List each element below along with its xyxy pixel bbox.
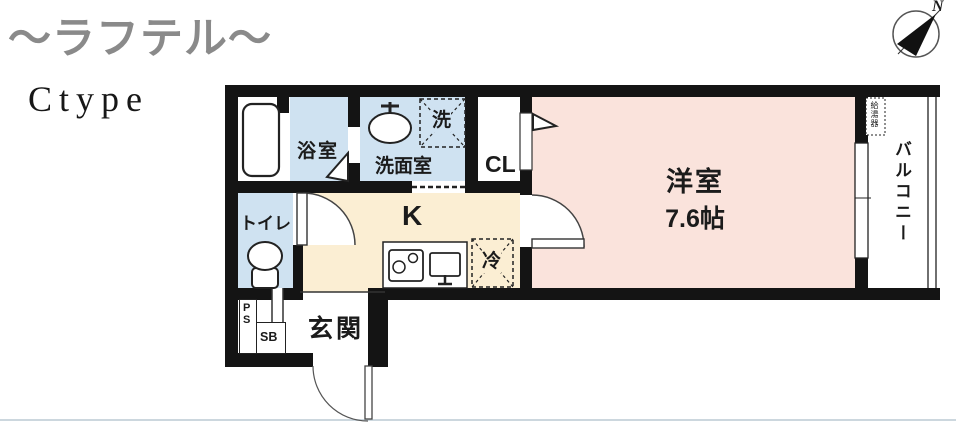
unit-type-label: Ctype <box>28 78 149 120</box>
plan-title: 〜ラフテル〜 <box>8 4 272 66</box>
window-balcony <box>855 143 868 258</box>
room-western-size: 7.6帖 <box>630 199 760 235</box>
wall-outer-left <box>225 85 238 367</box>
doorway-western-room <box>520 195 532 247</box>
wall-under-toilet <box>225 288 298 300</box>
room-western-label: 洋室 <box>630 160 760 199</box>
wall-tub-stub <box>277 97 289 113</box>
wall-bath-washroom-top <box>348 97 360 127</box>
compass-icon <box>893 11 939 57</box>
wall-outer-top <box>225 85 940 97</box>
room-entrance-label: 玄関 <box>308 309 364 345</box>
water-heater-label: 給湯器 <box>869 101 880 128</box>
compass-axis-line <box>898 10 940 54</box>
wall-bath-washroom-bottom <box>348 163 360 193</box>
fridge-label: 冷 <box>482 252 501 273</box>
room-kitchen-label: K <box>402 200 422 232</box>
shoe-box-label: SB <box>260 330 277 344</box>
floor-plan-page: 〜ラフテル〜 Ctype N <box>0 0 956 426</box>
compass-north-label: N <box>932 0 944 16</box>
bottom-divider-line <box>0 419 956 421</box>
room-bathroom-label: 浴室 <box>297 136 339 163</box>
entrance-door-leaf <box>365 366 372 419</box>
room-western-label-group: 洋室 7.6帖 <box>630 160 760 235</box>
room-toilet-label: トイレ <box>240 209 291 234</box>
wall-outer-bottom <box>385 288 940 300</box>
closet-door-strip <box>520 113 532 170</box>
floor-toilet <box>238 193 293 288</box>
laundry-label: 洗 <box>432 111 451 132</box>
entrance-door-arc <box>313 366 368 421</box>
doorway-toilet <box>293 193 303 245</box>
room-washroom-label: 洗面室 <box>375 151 432 178</box>
room-balcony-label: バルコニー <box>889 140 914 280</box>
wall-unit-right-bottom <box>855 258 868 288</box>
wall-washroom-right <box>465 97 478 193</box>
wall-closet-right-top <box>520 97 532 113</box>
compass-needle-icon <box>897 14 936 56</box>
wall-bath-bottom <box>225 181 412 193</box>
wall-unit-right-top <box>855 97 868 143</box>
room-closet-label: CL <box>485 151 516 178</box>
wall-genkan-bottom <box>225 353 313 367</box>
pipe-space-label: PS <box>243 303 255 326</box>
wall-closet-right-bottom <box>520 170 532 195</box>
